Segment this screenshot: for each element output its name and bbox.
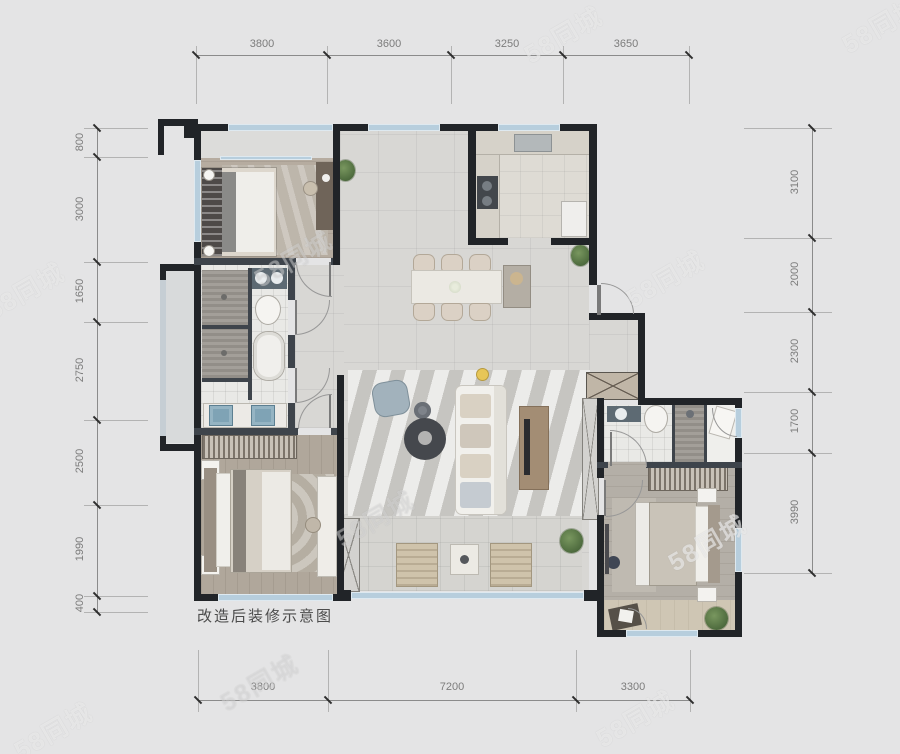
wall xyxy=(597,462,608,468)
sofa-cushion-2 xyxy=(460,424,491,448)
wall xyxy=(597,630,626,637)
wall xyxy=(202,378,248,382)
dim-top-1: 3800 xyxy=(240,38,284,50)
extension-line xyxy=(84,157,148,158)
extension-line xyxy=(744,573,832,574)
bedroom1-bed-duvet xyxy=(236,172,274,252)
wall xyxy=(160,444,200,451)
wall xyxy=(735,398,742,408)
dining-chair-2 xyxy=(442,255,462,271)
bath2-basin xyxy=(615,408,627,420)
shower2-drain xyxy=(221,350,227,356)
dim-left-4: 2750 xyxy=(74,348,86,392)
plant-balcony xyxy=(560,529,583,553)
bedroom1-bed-blanket xyxy=(222,172,236,252)
plant-dining xyxy=(571,245,590,266)
window-balcony2 xyxy=(626,630,698,637)
dim-bottom-2: 7200 xyxy=(430,681,474,693)
washer-1 xyxy=(210,406,232,425)
dining-chair-3 xyxy=(470,255,490,271)
extension-line xyxy=(744,392,832,393)
dimension-line-bottom xyxy=(198,700,690,701)
watermark: 58同城 xyxy=(619,241,711,315)
living-side-table xyxy=(414,402,431,419)
kitchen-sink xyxy=(514,134,552,152)
shower1-drain xyxy=(221,294,227,300)
extension-line xyxy=(84,420,148,421)
dimension-line-top xyxy=(196,55,689,56)
dim-right-3: 2300 xyxy=(789,329,801,373)
lounge-chair-2 xyxy=(491,544,531,586)
extension-line xyxy=(84,322,148,323)
dining-centerpiece xyxy=(449,281,461,293)
shower2-head xyxy=(686,410,694,418)
bedroom1-inner-window xyxy=(220,156,312,160)
bedroom1-bed-headboard xyxy=(202,168,222,256)
sofa-throw xyxy=(460,482,491,508)
bedroom1-chair xyxy=(304,182,317,195)
window-kitchen xyxy=(498,124,560,131)
window-bedroom1-left xyxy=(194,160,201,242)
bedroom2-nightstand-1 xyxy=(698,489,716,502)
bedroom1-lamp-bottom xyxy=(204,246,214,256)
wall xyxy=(468,238,508,245)
wall xyxy=(194,428,298,435)
lounge-chair-1 xyxy=(397,544,437,586)
kitchen-burner2 xyxy=(482,196,492,206)
lightwell-glass xyxy=(160,280,166,436)
bedroom1-desk-knob xyxy=(322,174,330,182)
floor-lamp xyxy=(477,369,488,380)
wall xyxy=(735,572,742,637)
wall xyxy=(589,124,597,285)
extension-line xyxy=(744,312,832,313)
ac-platform xyxy=(158,119,198,126)
watermark: 58同城 xyxy=(835,0,900,61)
extension-line xyxy=(84,596,148,597)
plant-balcony2 xyxy=(705,607,728,630)
kitchen-fridge xyxy=(561,201,587,237)
window-living-balcony xyxy=(351,592,584,599)
dim-right-5: 3990 xyxy=(789,490,801,534)
ac-platform xyxy=(158,119,164,155)
window-dining xyxy=(368,124,440,131)
bedroom1-bay-zone xyxy=(201,131,333,158)
wall xyxy=(551,238,589,245)
wall xyxy=(698,630,742,637)
extension-line xyxy=(744,128,832,129)
bedroom1-lamp-top xyxy=(204,170,214,180)
dim-right-4: 1700 xyxy=(789,399,801,443)
master-bed-pillows xyxy=(217,474,231,566)
dimension-line-left xyxy=(97,128,98,612)
ac-platform xyxy=(184,126,198,138)
wall xyxy=(202,325,248,329)
dim-left-7: 400 xyxy=(74,581,86,625)
wall xyxy=(597,515,604,637)
dim-left-2: 3000 xyxy=(74,187,86,231)
wall xyxy=(160,264,200,271)
bedroom2-wardrobe xyxy=(648,467,728,491)
wall xyxy=(440,124,498,131)
dim-top-4: 3650 xyxy=(604,38,648,50)
dim-top-2: 3600 xyxy=(367,38,411,50)
balcony-table-dot xyxy=(460,555,469,564)
bedroom2-bed-foot xyxy=(636,503,650,585)
sideboard-board xyxy=(510,272,523,285)
dim-right-1: 3100 xyxy=(789,160,801,204)
extension-line xyxy=(84,262,148,263)
sofa-cushion-3 xyxy=(460,454,491,478)
floor-entry-corridor xyxy=(589,320,638,373)
master-bed-headboard xyxy=(204,468,217,572)
dining-chair-1 xyxy=(414,255,434,271)
plan-caption: 改造后装修示意图 xyxy=(197,605,333,626)
entry-closet xyxy=(586,372,640,400)
window-bedroom1 xyxy=(228,124,333,131)
floorplan-canvas: 3800 3600 3250 3650 3800 7200 3300 800 3… xyxy=(0,0,900,754)
washer-2 xyxy=(252,406,274,425)
dim-left-3: 1650 xyxy=(74,269,86,313)
watermark: 58同城 xyxy=(7,693,99,754)
bath1-tub xyxy=(254,332,284,380)
coffee-table-tray xyxy=(418,431,432,445)
dim-left-1: 800 xyxy=(74,120,86,164)
dining-chair-6 xyxy=(470,304,490,320)
kitchen-burner1 xyxy=(482,181,492,191)
wall xyxy=(638,313,645,400)
wall xyxy=(672,405,675,462)
dimension-line-right xyxy=(812,128,813,573)
master-wardrobe xyxy=(202,435,297,459)
master-bed-throw xyxy=(233,470,246,572)
extension-line xyxy=(744,238,832,239)
extension-line xyxy=(84,612,148,613)
dim-left-6: 1990 xyxy=(74,527,86,571)
extension-line xyxy=(84,505,148,506)
wall xyxy=(704,405,707,462)
wall xyxy=(288,335,295,368)
wall xyxy=(468,131,476,245)
extension-line xyxy=(84,128,148,129)
dining-chair-4 xyxy=(414,304,434,320)
watermark: 58同城 xyxy=(0,253,71,327)
wall xyxy=(194,242,201,601)
wall xyxy=(194,594,218,601)
wall xyxy=(646,462,742,468)
watermark: 58同城 xyxy=(213,645,305,719)
wall xyxy=(337,375,344,594)
window-master xyxy=(218,594,333,601)
extension-line xyxy=(744,453,832,454)
lightwell xyxy=(166,271,194,443)
dim-right-2: 2000 xyxy=(789,252,801,296)
bedroom2-tv xyxy=(605,524,609,574)
master-desk-chair xyxy=(306,518,320,532)
wall xyxy=(638,398,742,405)
bedroom2-nightstand-2 xyxy=(698,588,716,601)
dining-chair-5 xyxy=(442,304,462,320)
master-bed-runner xyxy=(262,472,290,570)
wall xyxy=(248,268,252,400)
sofa-cushion-1 xyxy=(460,394,491,418)
dim-left-5: 2500 xyxy=(74,439,86,483)
wall xyxy=(337,590,351,601)
sofa-back xyxy=(494,386,506,514)
tv-screen xyxy=(524,419,530,475)
living-armchair xyxy=(371,379,410,417)
